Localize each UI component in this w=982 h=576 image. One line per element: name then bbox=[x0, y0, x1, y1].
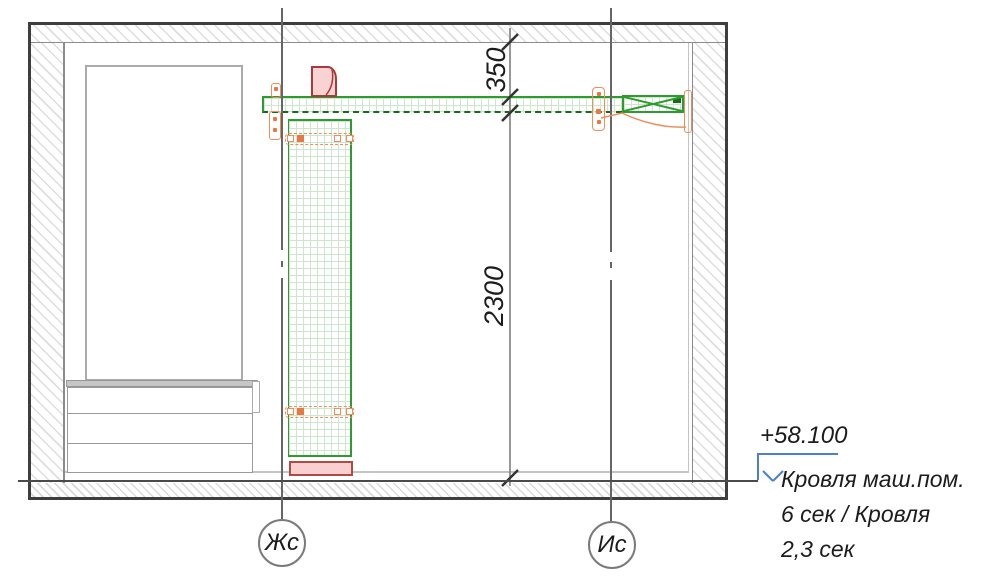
beam-bracket-middle bbox=[592, 87, 605, 131]
bolt-dot bbox=[273, 117, 277, 121]
bolt-dot bbox=[597, 120, 601, 124]
bolt-dot bbox=[597, 92, 601, 96]
elevation-value: +58.100 bbox=[760, 422, 847, 450]
bolt-dot bbox=[596, 109, 601, 114]
fastener-plate bbox=[287, 408, 294, 415]
beam-top-pad bbox=[311, 66, 337, 97]
fastener-plate bbox=[287, 135, 294, 142]
beam-bracket-left-lower bbox=[269, 111, 281, 140]
dimension-label-2300: 2300 bbox=[479, 231, 505, 361]
beam-cross-braced-end bbox=[622, 95, 684, 113]
drawing-canvas: Жс Ис 350 2300 +58.100 Кровля маш.пом. 6… bbox=[0, 0, 982, 576]
monorail-beam bbox=[262, 96, 622, 113]
elevation-note-line: Кровля маш.пом. bbox=[781, 462, 981, 497]
bolt-dot bbox=[273, 128, 277, 132]
wall-bracket-right bbox=[684, 90, 692, 133]
fastener-bolt bbox=[297, 408, 304, 415]
beam-anchor-plate bbox=[673, 98, 681, 103]
fastener-plate bbox=[334, 408, 341, 415]
elevation-note: Кровля маш.пом. 6 сек / Кровля 2,3 сек bbox=[781, 462, 981, 567]
column-footing bbox=[289, 461, 353, 476]
elevation-note-line: 2,3 сек bbox=[781, 532, 981, 567]
dimension-label-350: 350 bbox=[481, 18, 507, 122]
fastener-plate bbox=[346, 135, 353, 142]
fastener-bolt bbox=[297, 135, 304, 142]
elevation-note-line: 6 сек / Кровля bbox=[781, 497, 981, 532]
fastener-plate bbox=[346, 408, 353, 415]
axis-bubble-zhs: Жс bbox=[258, 519, 306, 567]
axis-bubble-is: Ис bbox=[588, 521, 636, 569]
column-fastener-band-lower bbox=[285, 406, 354, 418]
building-outline bbox=[28, 22, 728, 500]
axis-label-is: Ис bbox=[597, 531, 626, 559]
column-fastener-band-upper bbox=[285, 133, 354, 145]
axis-label-zhs: Жс bbox=[265, 529, 299, 557]
fastener-plate bbox=[334, 135, 341, 142]
elevation-arrow bbox=[763, 471, 773, 481]
bolt-dot bbox=[274, 87, 278, 91]
beam-bracket-left-upper bbox=[271, 83, 281, 98]
